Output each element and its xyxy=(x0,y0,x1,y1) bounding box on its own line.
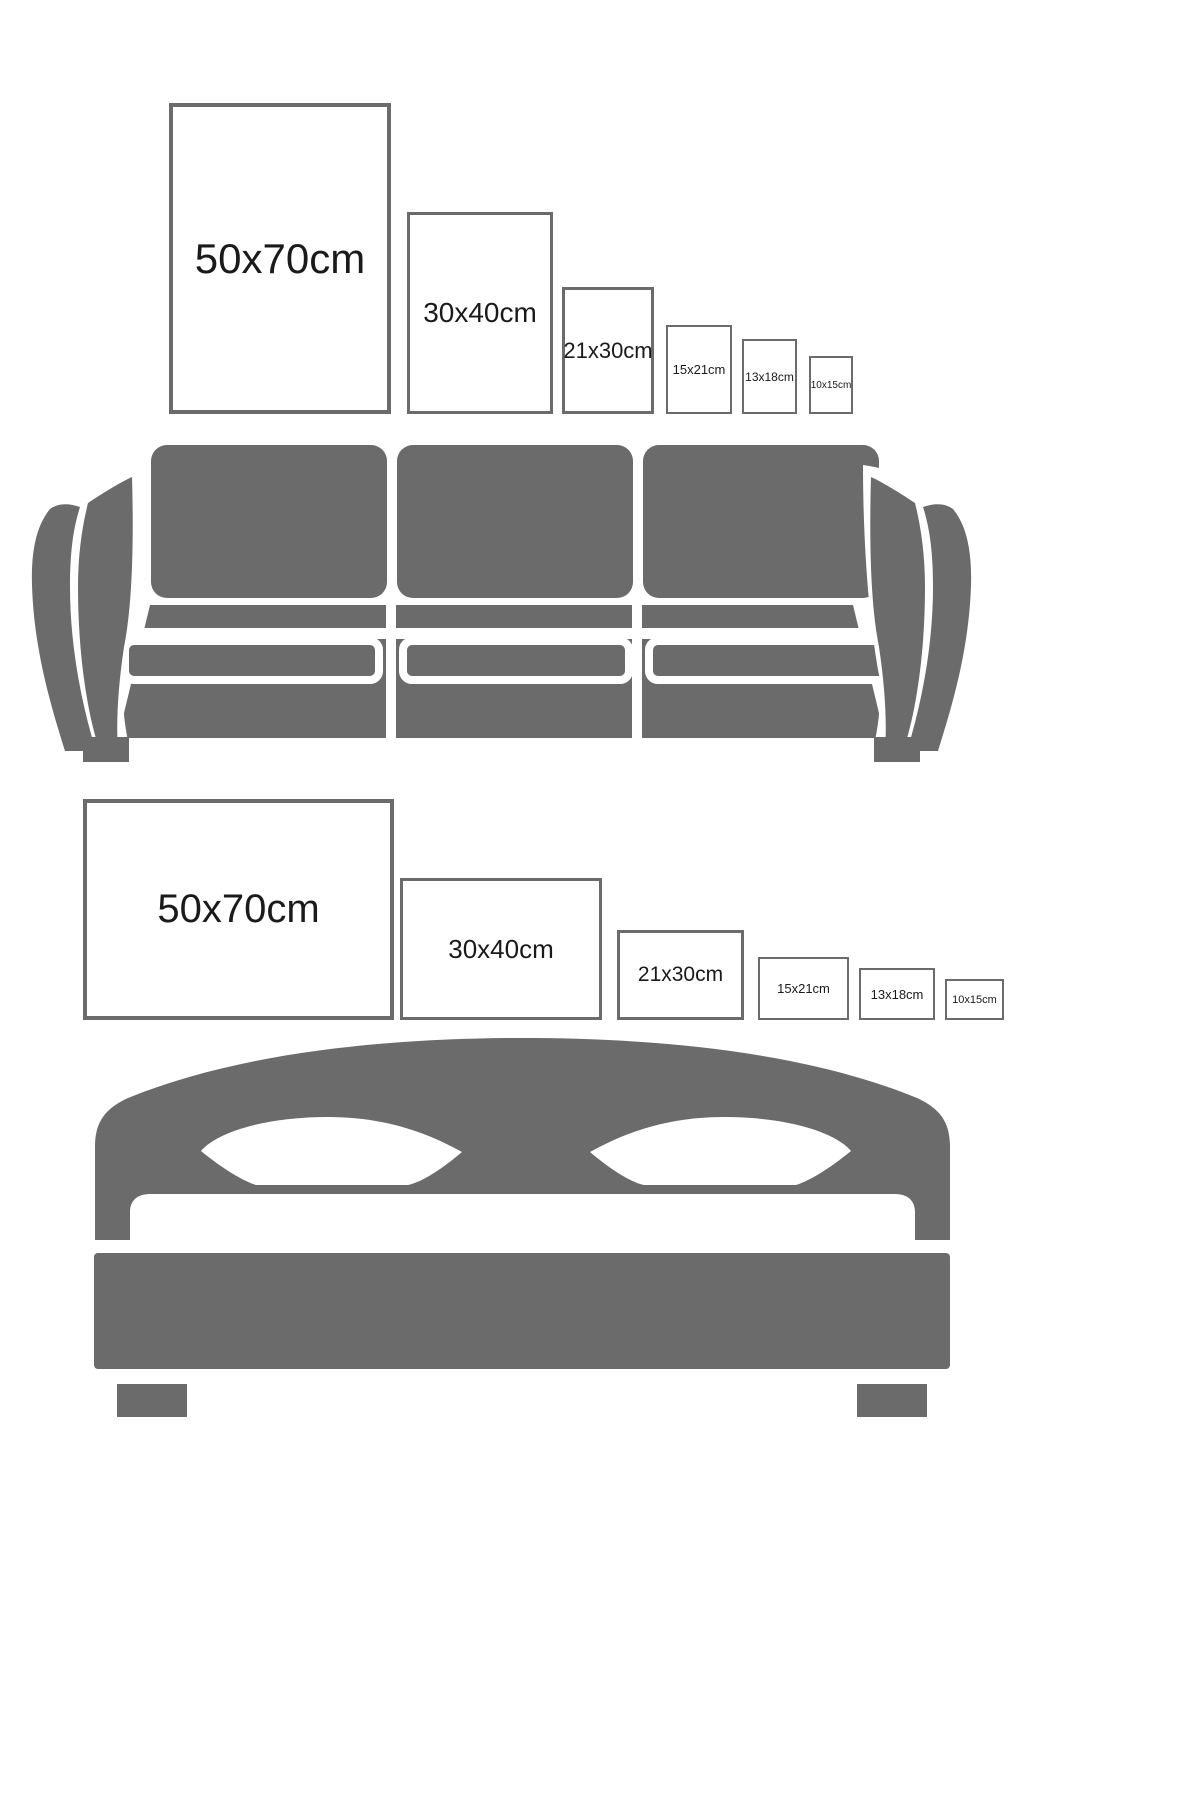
sofa-armrest-left xyxy=(28,465,140,761)
sofa-leg xyxy=(83,737,129,762)
seat-cushion xyxy=(403,641,629,680)
frame-landscape-10x15: 10x15cm xyxy=(945,979,1004,1020)
bed-base xyxy=(94,1253,950,1369)
back-cushion xyxy=(397,445,633,598)
frame-portrait-10x15: 10x15cm xyxy=(809,356,853,414)
frame-portrait-30x40: 30x40cm xyxy=(407,212,553,414)
sofa-leg xyxy=(874,737,920,762)
frame-size-label: 21x30cm xyxy=(563,338,652,364)
frame-landscape-21x30: 21x30cm xyxy=(617,930,744,1020)
frame-size-label: 21x30cm xyxy=(638,963,723,987)
seat-cushion xyxy=(125,641,379,680)
frame-portrait-13x18: 13x18cm xyxy=(742,339,797,414)
frame-size-label: 50x70cm xyxy=(157,887,319,932)
frame-landscape-13x18: 13x18cm xyxy=(859,968,935,1020)
frame-size-label: 30x40cm xyxy=(448,934,554,965)
frame-portrait-21x30: 21x30cm xyxy=(562,287,654,414)
frame-landscape-15x21: 15x21cm xyxy=(758,957,849,1020)
sofa-armrest-right xyxy=(863,465,975,761)
frame-size-label: 50x70cm xyxy=(195,235,365,283)
frame-landscape-50x70: 50x70cm xyxy=(83,799,394,1020)
frame-portrait-15x21: 15x21cm xyxy=(666,325,732,414)
bed-leg xyxy=(117,1384,187,1417)
frame-size-label: 30x40cm xyxy=(423,297,537,329)
frame-size-label: 10x15cm xyxy=(952,994,997,1006)
frame-size-label: 13x18cm xyxy=(745,370,794,384)
back-cushion xyxy=(643,445,879,598)
sofa-illustration xyxy=(28,437,975,767)
frame-landscape-30x40: 30x40cm xyxy=(400,878,602,1020)
frame-size-label: 10x15cm xyxy=(811,380,852,391)
seat-cushion xyxy=(649,641,903,680)
frame-size-label: 15x21cm xyxy=(673,362,726,377)
frame-portrait-50x70: 50x70cm xyxy=(169,103,391,414)
bed-illustration xyxy=(90,1035,970,1425)
frame-size-label: 13x18cm xyxy=(871,987,924,1002)
bed-leg xyxy=(857,1384,927,1417)
frame-size-label: 15x21cm xyxy=(777,981,830,996)
back-cushion xyxy=(151,445,387,598)
